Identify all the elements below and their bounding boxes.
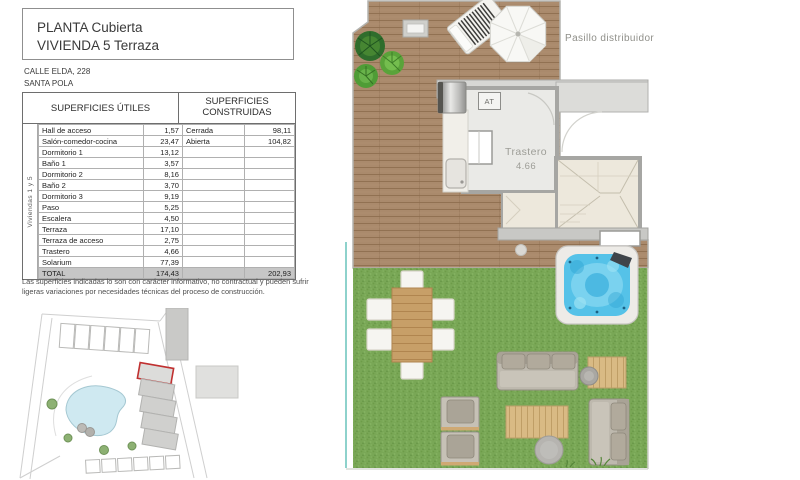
room-area: 9,19 <box>144 191 183 202</box>
community-pool <box>66 386 125 436</box>
jacuzzi <box>556 246 638 324</box>
areas-table-header: SUPERFICIES ÚTILES SUPERFICIES CONSTRUID… <box>23 93 295 124</box>
room-area: 3,70 <box>144 180 183 191</box>
sofa <box>589 399 629 465</box>
table-row: Baño 13,57 <box>39 158 295 169</box>
construidas-name <box>182 180 244 191</box>
table-row: Dormitorio 39,19 <box>39 191 295 202</box>
address: CALLE ELDA, 228 SANTA POLA <box>24 66 90 89</box>
construidas-name <box>182 235 244 246</box>
construidas-name <box>182 158 244 169</box>
table-row: Solarium77,39 <box>39 257 295 268</box>
townhouse-row-bottom <box>86 455 181 473</box>
neighbor-building <box>166 308 188 360</box>
areas-table: SUPERFICIES ÚTILES SUPERFICIES CONSTRUID… <box>22 92 296 280</box>
armchair <box>441 432 479 466</box>
header-superficies-construidas: SUPERFICIES CONSTRUIDAS <box>179 93 295 123</box>
trastero-area: 4.66 <box>516 161 536 172</box>
trastero-name: Trastero <box>505 146 547 158</box>
site-plan-drawing <box>8 308 243 480</box>
dining-table <box>392 288 432 362</box>
plan-sheet: Pasillo distribuidor Trastero 4.66 AT PL… <box>0 0 800 480</box>
room-area: 4,50 <box>144 213 183 224</box>
room-name: Trastero <box>39 246 144 257</box>
room-area: 2,75 <box>144 235 183 246</box>
disclaimer-text: Las superficies indicadas lo son con car… <box>22 277 316 297</box>
construidas-area <box>245 257 295 268</box>
room-name: Terraza de acceso <box>39 235 144 246</box>
plan-title-line2: VIVIENDA 5 Terraza <box>37 37 293 55</box>
room-area: 8,16 <box>144 169 183 180</box>
room-name: Dormitorio 3 <box>39 191 144 202</box>
table-row: Salón-comedor-cocina23,47Abierta104,82 <box>39 136 295 147</box>
plan-title-line1: PLANTA Cubierta <box>37 19 293 37</box>
construidas-area <box>245 224 295 235</box>
room-name: Solarium <box>39 257 144 268</box>
trastero-label: Trastero 4.66 <box>492 146 560 173</box>
room-name: Salón-comedor-cocina <box>39 136 144 147</box>
room-area: 1,57 <box>144 125 183 136</box>
construidas-area <box>245 235 295 246</box>
window <box>600 231 640 246</box>
construidas-area <box>245 213 295 224</box>
construidas-area: 104,82 <box>245 136 295 147</box>
title-box: PLANTA Cubierta VIVIENDA 5 Terraza <box>22 8 294 60</box>
room-name: Terraza <box>39 224 144 235</box>
at-box: AT <box>478 92 501 110</box>
room-name: Hall de acceso <box>39 125 144 136</box>
table-row: Trastero4,66 <box>39 246 295 257</box>
construidas-area <box>245 191 295 202</box>
table-row: Dormitorio 28,16 <box>39 169 295 180</box>
construidas-name: Abierta <box>182 136 244 147</box>
deck-light <box>516 245 527 256</box>
door-swing-arc <box>562 112 602 152</box>
parasol <box>490 6 545 61</box>
coffee-table <box>506 406 568 438</box>
table-row: Terraza17,10 <box>39 224 295 235</box>
construidas-area <box>245 202 295 213</box>
armchair <box>441 397 479 431</box>
construidas-area: 98,11 <box>245 125 295 136</box>
deck-side-table <box>403 20 428 37</box>
room-area: 5,25 <box>144 202 183 213</box>
room-name: Baño 1 <box>39 158 144 169</box>
room-area: 13,12 <box>144 147 183 158</box>
construidas-name <box>182 246 244 257</box>
pasillo-label: Pasillo distribuidor <box>565 33 654 44</box>
room-area: 3,57 <box>144 158 183 169</box>
address-line2: SANTA POLA <box>24 78 90 90</box>
areas-table-body: Hall de acceso1,57Cerrada98,11Salón-come… <box>39 125 295 279</box>
side-label: Viviendas 1 y 5 <box>27 176 34 227</box>
construidas-area <box>245 180 295 191</box>
construidas-area <box>245 147 295 158</box>
table-row: Baño 23,70 <box>39 180 295 191</box>
header-superficies-utiles: SUPERFICIES ÚTILES <box>23 93 179 123</box>
construidas-name <box>182 224 244 235</box>
areas-rows-table: Hall de acceso1,57Cerrada98,11Salón-come… <box>38 124 295 279</box>
areas-table-rows: Viviendas 1 y 5 Hall de acceso1,57Cerrad… <box>23 124 295 279</box>
address-line1: CALLE ELDA, 228 <box>24 66 90 78</box>
construidas-name <box>182 191 244 202</box>
room-area: 23,47 <box>144 136 183 147</box>
construidas-name <box>182 202 244 213</box>
construidas-name <box>182 169 244 180</box>
construidas-area <box>245 158 295 169</box>
room-name: Baño 2 <box>39 180 144 191</box>
construidas-area <box>245 169 295 180</box>
room-name: Escalera <box>39 213 144 224</box>
room-area: 4,66 <box>144 246 183 257</box>
sink <box>446 159 466 188</box>
construidas-name: Cerrada <box>182 125 244 136</box>
construidas-name <box>182 257 244 268</box>
table-row: Hall de acceso1,57Cerrada98,11 <box>39 125 295 136</box>
table-row: Terraza de acceso2,75 <box>39 235 295 246</box>
table-row: Paso5,25 <box>39 202 295 213</box>
room-name: Paso <box>39 202 144 213</box>
room-area: 17,10 <box>144 224 183 235</box>
room-name: Dormitorio 2 <box>39 169 144 180</box>
side-strip: Viviendas 1 y 5 <box>23 124 38 279</box>
room-area: 77,39 <box>144 257 183 268</box>
table-row: Escalera4,50 <box>39 213 295 224</box>
table-row: Dormitorio 113,12 <box>39 147 295 158</box>
construidas-name <box>182 147 244 158</box>
building-block <box>126 363 189 450</box>
townhouse-row-top <box>59 323 149 353</box>
construidas-name <box>182 213 244 224</box>
neighbor-building <box>196 366 238 398</box>
room-name: Dormitorio 1 <box>39 147 144 158</box>
construidas-area <box>245 246 295 257</box>
